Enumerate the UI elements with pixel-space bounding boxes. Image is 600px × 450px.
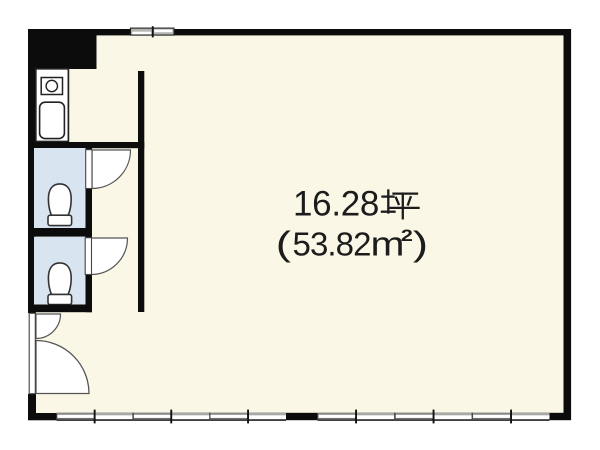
svg-text:16.28: 16.28: [293, 185, 379, 224]
svg-text:): ): [413, 225, 428, 263]
svg-text:m: m: [371, 225, 405, 263]
svg-text:53.82: 53.82: [293, 225, 371, 262]
svg-text:2: 2: [401, 227, 413, 245]
svg-text:(: (: [276, 225, 292, 263]
